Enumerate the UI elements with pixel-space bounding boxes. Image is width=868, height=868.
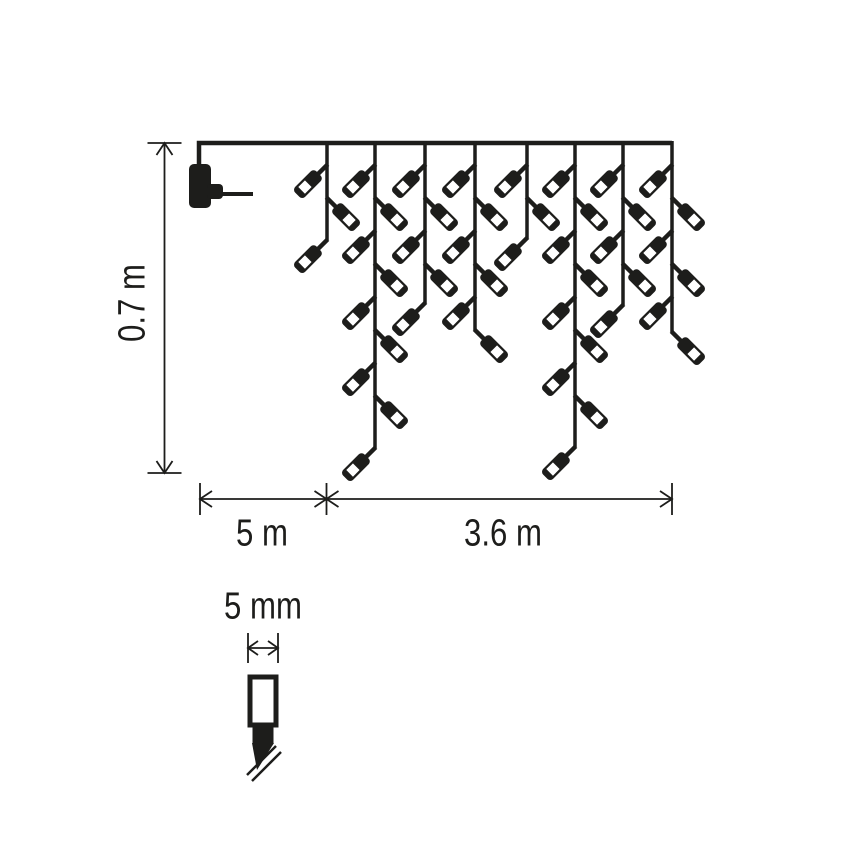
plug-pin [222, 192, 253, 196]
lead-length-label: 5 m [236, 513, 288, 556]
led-icon [469, 324, 509, 364]
led-icon [588, 299, 628, 339]
bulb-width-label: 5 mm [224, 586, 302, 629]
plug-prong [207, 184, 223, 199]
icicle-strand [440, 141, 509, 365]
power-plug-icon [189, 164, 253, 208]
led-icon [340, 442, 380, 482]
bulb-detail-icon [247, 677, 281, 781]
led-icon [390, 297, 430, 337]
led-icon [292, 234, 332, 274]
curtain-length-label: 3.6 m [464, 513, 542, 556]
product-diagram-svg [0, 0, 868, 868]
diagram-canvas: 0.7 m 5 m 3.6 m 5 mm [0, 0, 868, 868]
drop-height-label: 0.7 m [112, 264, 155, 342]
length-dimension [200, 483, 672, 515]
icicle-strand [637, 141, 706, 367]
bulb-width-dimension [248, 633, 278, 663]
bulb-glass [250, 677, 276, 725]
bulb-base [253, 723, 274, 744]
top-wire [199, 143, 672, 170]
icicle-strand [390, 141, 459, 338]
icicle-strand [588, 141, 657, 340]
led-icon [540, 441, 580, 481]
led-icon [492, 232, 532, 272]
led-icon [666, 326, 706, 366]
